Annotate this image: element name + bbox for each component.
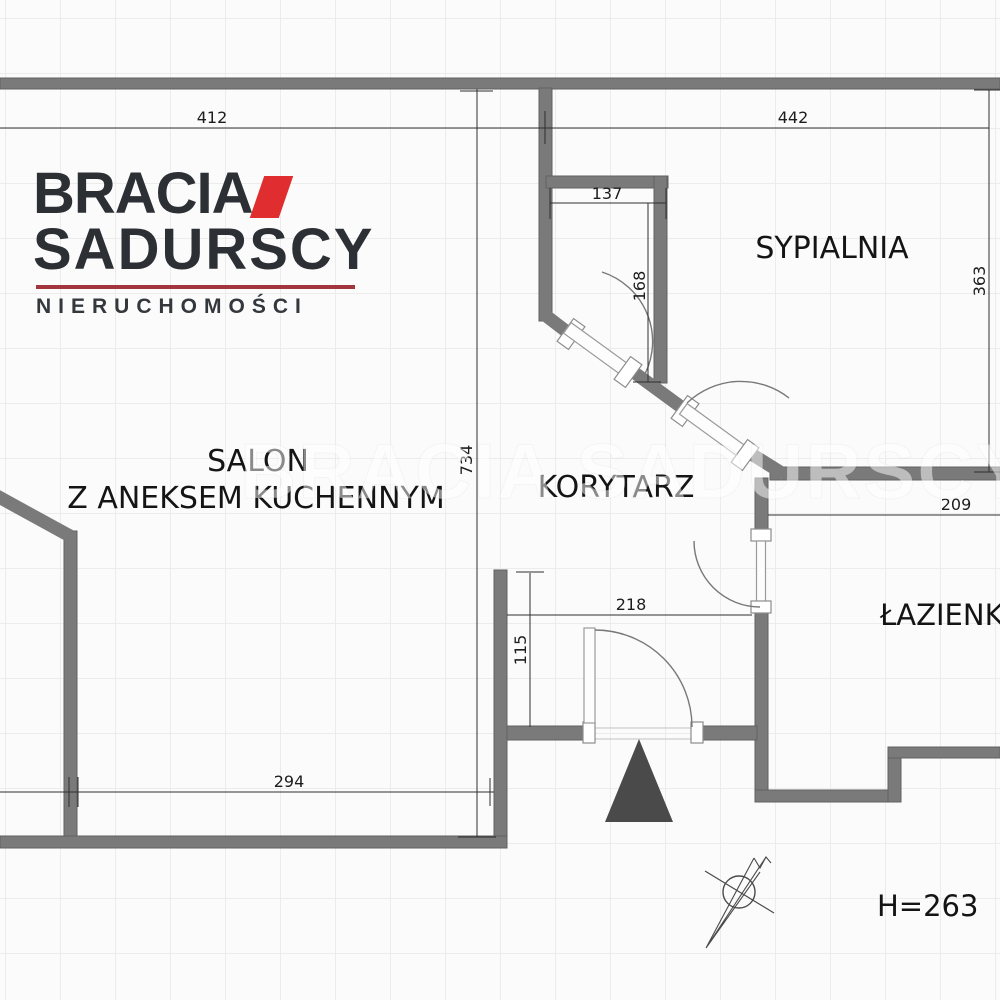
markers [605,739,774,948]
wall-salon-diagonal [0,496,70,536]
wall-closet-right [654,176,667,383]
bedroom-door-swing-arc [687,381,789,403]
doors [557,272,789,743]
dim-label-734: 734 [457,445,476,476]
dim-label-412: 412 [197,108,228,127]
ceiling-height-label: H=263 [877,889,978,923]
dim-label-137: 137 [592,184,623,203]
room-label-bedroom: SYPIALNIA [755,231,909,266]
room-label-bathroom: ŁAZIENKA [879,598,1000,632]
entrance-triangle-icon [605,739,673,822]
agency-logo: BRACIA SADURSCY NIERUCHOMOŚCI [33,166,375,319]
dim-label-218: 218 [616,595,647,614]
wall-hall-left [494,570,507,848]
compass-cross-line [705,871,774,913]
room-label-corridor: KORYTARZ [538,470,695,505]
wall-entry-left-stub [505,726,585,740]
dim-label-168: 168 [630,271,649,302]
floor-plan-svg: 412 442 137 168 363 734 209 218 115 294 … [0,0,1000,1000]
dim-label-209: 209 [941,495,972,514]
wall-bottom-right [888,747,1000,758]
entrance-door-jamb-right [691,722,703,743]
dim-label-115: 115 [511,635,530,666]
entrance-door-swing-arc [595,630,692,727]
logo-text-bracia: BRACIA [33,166,375,222]
logo-divider-rule [36,285,355,289]
dim-label-442: 442 [778,108,809,127]
wall-bathroom-left-upper [755,478,768,532]
logo-text-sadurscy: SADURSCY [33,222,375,278]
dim-label-294: 294 [274,772,305,791]
entrance-door-jamb-left [583,722,595,743]
room-label-salon-line2: Z ANEKSEM KUCHENNYM [67,481,444,516]
bathroom-door-jamb-top [751,529,771,541]
logo-line1-row: BRACIA [33,166,375,222]
room-labels: SALON Z ANEKSEM KUCHENNYM SYPIALNIA KORY… [67,231,1000,923]
floor-plan-page: { "brand": { "name_line1": "BRACIA", "na… [0,0,1000,1000]
wall-bathroom-top [770,467,1000,480]
wall-bathroom-bottom [755,790,901,802]
compass-north-arrow-icon [705,857,774,948]
wall-bottom [0,836,507,848]
room-label-salon: SALON [207,444,309,479]
wall-bathroom-left-lower [755,613,768,793]
wall-entry-right-stub [701,726,757,740]
logo-tagline: NIERUCHOMOŚCI [36,295,375,319]
dim-label-363: 363 [970,266,989,297]
bathroom-door-leaf [757,541,766,603]
compass-needle-fletching [754,857,771,868]
wall-top [0,78,1000,89]
entrance-door-leaf [584,628,595,723]
bathroom-door-swing-arc [694,541,760,607]
wall-salon-left [64,531,77,836]
